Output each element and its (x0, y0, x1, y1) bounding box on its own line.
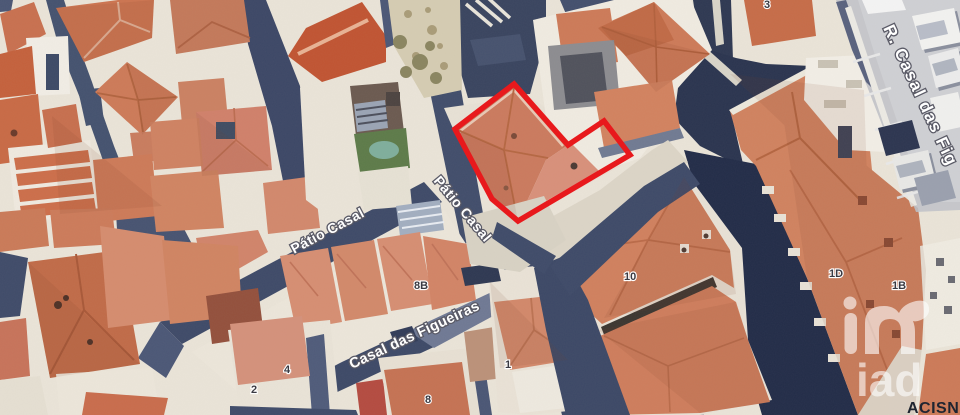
svg-text:iad: iad (856, 354, 922, 406)
svg-text:1: 1 (505, 359, 511, 371)
svg-text:1B: 1B (892, 280, 906, 292)
svg-text:8: 8 (425, 394, 431, 406)
svg-text:8B: 8B (414, 280, 428, 292)
svg-text:2: 2 (251, 384, 257, 396)
svg-text:10: 10 (624, 271, 636, 283)
svg-text:3: 3 (764, 0, 770, 11)
svg-text:1D: 1D (829, 268, 843, 280)
svg-text:4: 4 (284, 364, 291, 376)
